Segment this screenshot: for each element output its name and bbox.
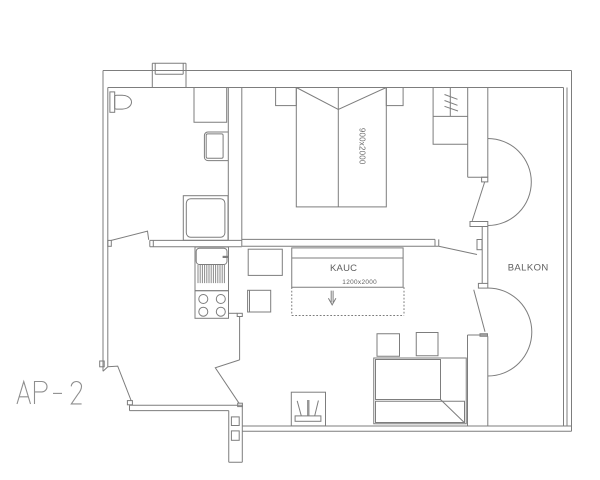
svg-text:KAUC: KAUC [330,263,357,274]
svg-text:BALKON: BALKON [508,263,549,274]
svg-text:900x2000: 900x2000 [357,128,366,165]
svg-text:1200x2000: 1200x2000 [342,279,377,286]
